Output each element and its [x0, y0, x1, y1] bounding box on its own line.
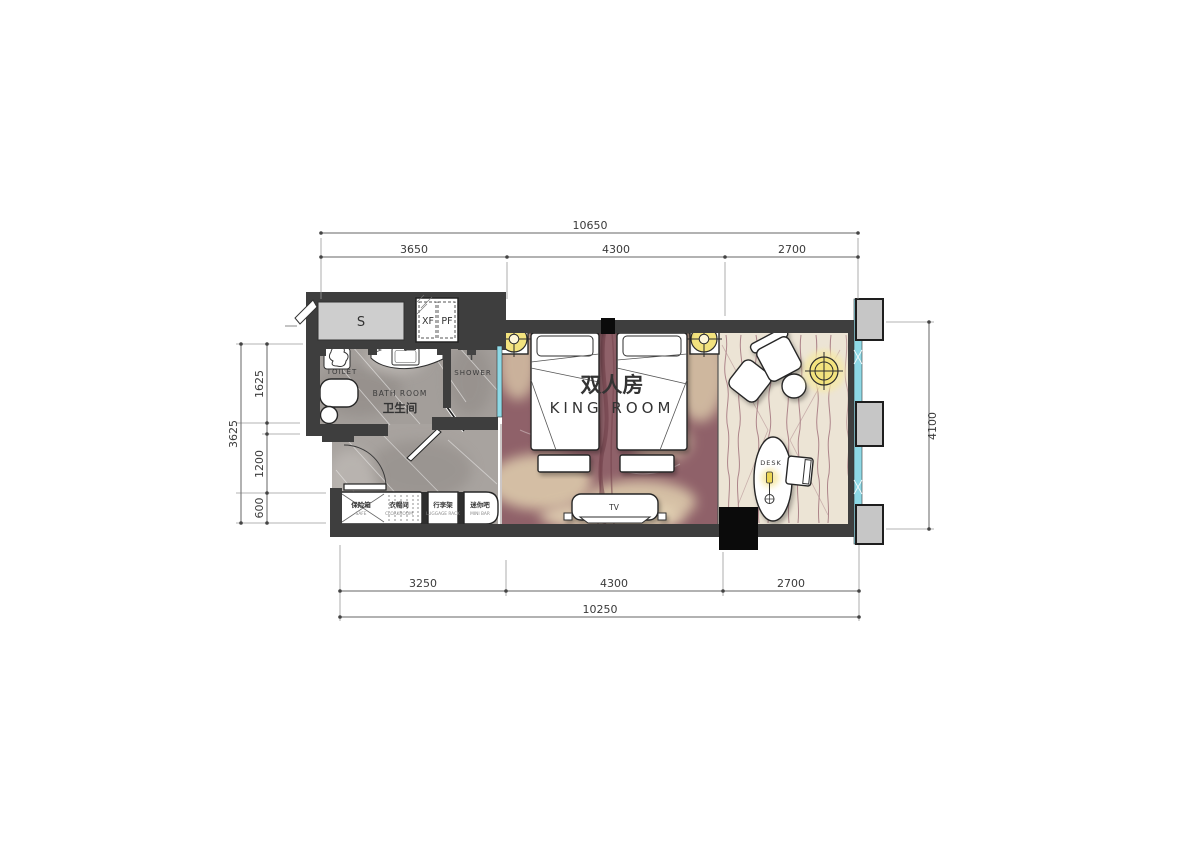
- desk-label: DESK: [760, 459, 782, 467]
- dim-top-seg-2: 4300: [602, 243, 630, 256]
- side-table: [782, 374, 806, 398]
- dim-right-total: 4100: [926, 412, 939, 440]
- safe-label-zh: 保险箱: [350, 500, 371, 509]
- dim-left: 3625 1625 1200 600: [227, 342, 269, 525]
- cloakroom-label-en: CLOAKROOM: [385, 511, 413, 517]
- minibar-label-en: MINI BAR: [470, 511, 490, 517]
- luggage-label-en: LUGGAGE RACK: [426, 511, 460, 517]
- shaft-label: S: [357, 315, 365, 330]
- king-room-label-zh: 双人房: [581, 373, 644, 397]
- dim-bottom-total: 10250: [583, 603, 618, 616]
- safe-label-en: SAFE: [356, 511, 367, 517]
- headboard-column: [601, 318, 615, 334]
- tv-screen: [580, 517, 650, 523]
- dim-right: 4100: [926, 320, 939, 531]
- cabinet-divider: [458, 492, 464, 524]
- dim-bottom-seg-2: 4300: [600, 577, 628, 590]
- entry-door-leaf: [344, 484, 386, 490]
- floor-lamp-icon: [803, 350, 845, 392]
- cabinet-divider: [422, 492, 428, 524]
- top-wall: [506, 320, 858, 333]
- toilet-label: TOILET: [326, 368, 357, 376]
- bathroom-left-wall: [306, 349, 320, 432]
- dim-top: 10650 3650 4300 2700: [319, 219, 860, 259]
- bed-right-pillow: [623, 336, 681, 356]
- shower-glass-partition: [497, 346, 502, 417]
- dim-left-seg-3: 600: [253, 498, 266, 519]
- dim-top-total: 10650: [573, 219, 608, 232]
- dim-top-seg-1: 3650: [400, 243, 428, 256]
- floor-plan-canvas: S XF PF TOILET BATH ROOM 卫生间 SHOWER 双人房 …: [0, 0, 1200, 849]
- bathtub: [320, 379, 358, 407]
- king-room-label-en: KING ROOM: [550, 399, 675, 417]
- shower-partition-wall: [443, 346, 451, 408]
- dim-bottom-seg-1: 3250: [409, 577, 437, 590]
- corridor-left-wall: [330, 488, 342, 537]
- bed-left-bench: [538, 455, 590, 472]
- minibar-label-zh: 迷你吧: [469, 500, 490, 509]
- dim-left-total: 3625: [227, 420, 240, 448]
- dim-left-seg-2: 1200: [253, 450, 266, 478]
- floor-plan-page: S XF PF TOILET BATH ROOM 卫生间 SHOWER 双人房 …: [0, 0, 1200, 849]
- dim-left-seg-1: 1625: [253, 370, 266, 398]
- bathroom-label-en: BATH ROOM: [373, 389, 428, 398]
- desk-chair: [786, 456, 814, 486]
- luggage-label-zh: 行李架: [432, 500, 453, 509]
- duct-pf-label: PF: [441, 316, 452, 327]
- shower-label: SHOWER: [454, 369, 491, 377]
- tv-cabinet-foot-right: [658, 513, 666, 520]
- dim-bottom: 3250 4300 2700 10250: [338, 577, 861, 619]
- structural-column: [719, 507, 758, 550]
- tv-cabinet-foot-left: [564, 513, 572, 520]
- dim-bottom-seg-3: 2700: [777, 577, 805, 590]
- bed-left-pillow: [537, 336, 593, 356]
- dim-top-seg-3: 2700: [778, 243, 806, 256]
- tv-label: TV: [608, 503, 620, 512]
- bathroom-label-zh: 卫生间: [383, 401, 418, 415]
- bottom-wall: [330, 524, 854, 537]
- facade-pillars: [856, 299, 883, 544]
- bed-right-bench: [620, 455, 674, 472]
- cloakroom-label-zh: 衣帽间: [389, 500, 409, 509]
- bath-stool: [321, 407, 338, 424]
- duct-xf-label: XF: [422, 316, 434, 327]
